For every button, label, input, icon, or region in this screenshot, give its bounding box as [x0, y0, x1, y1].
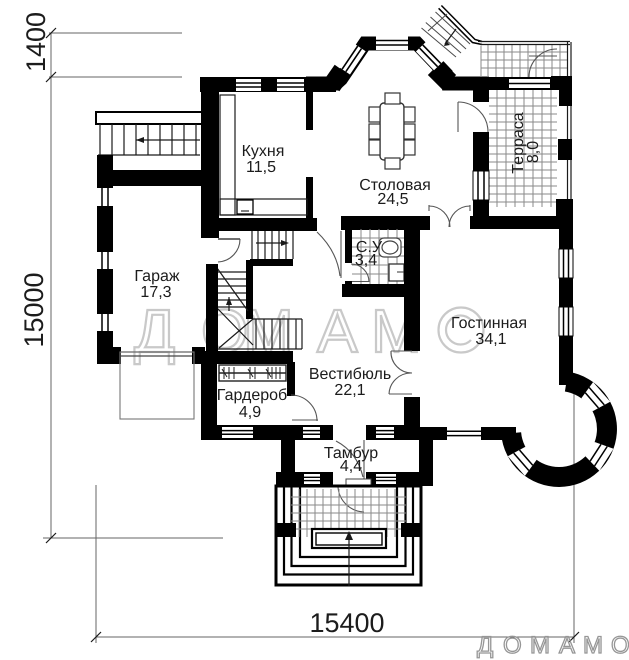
- svg-text:15400: 15400: [309, 608, 384, 638]
- svg-text:М: М: [583, 632, 603, 659]
- svg-text:М: М: [530, 632, 550, 659]
- svg-text:А: А: [317, 297, 358, 365]
- svg-text:А: А: [559, 632, 575, 659]
- svg-text:Д: Д: [134, 297, 175, 365]
- svg-text:22,1: 22,1: [334, 382, 365, 399]
- svg-text:24,5: 24,5: [377, 191, 408, 208]
- svg-text:4,9: 4,9: [239, 404, 261, 421]
- svg-text:О: О: [611, 632, 629, 659]
- svg-text:Д: Д: [477, 632, 493, 659]
- svg-text:Гостинная: Гостинная: [451, 315, 527, 332]
- svg-text:Кухня: Кухня: [242, 143, 285, 160]
- svg-text:8,0: 8,0: [525, 141, 542, 163]
- svg-text:1400: 1400: [21, 12, 51, 72]
- svg-text:11,5: 11,5: [246, 159, 276, 176]
- svg-text:Гараж: Гараж: [134, 268, 179, 285]
- svg-text:О: О: [503, 632, 522, 659]
- svg-text:4,4: 4,4: [340, 458, 362, 475]
- svg-text:3,4: 3,4: [355, 252, 377, 269]
- svg-text:34,1: 34,1: [475, 331, 506, 348]
- svg-text:17,3: 17,3: [140, 284, 171, 301]
- svg-text:Гардероб: Гардероб: [217, 387, 287, 404]
- svg-text:15000: 15000: [19, 272, 49, 347]
- svg-text:Вестибюль: Вестибюль: [309, 366, 391, 383]
